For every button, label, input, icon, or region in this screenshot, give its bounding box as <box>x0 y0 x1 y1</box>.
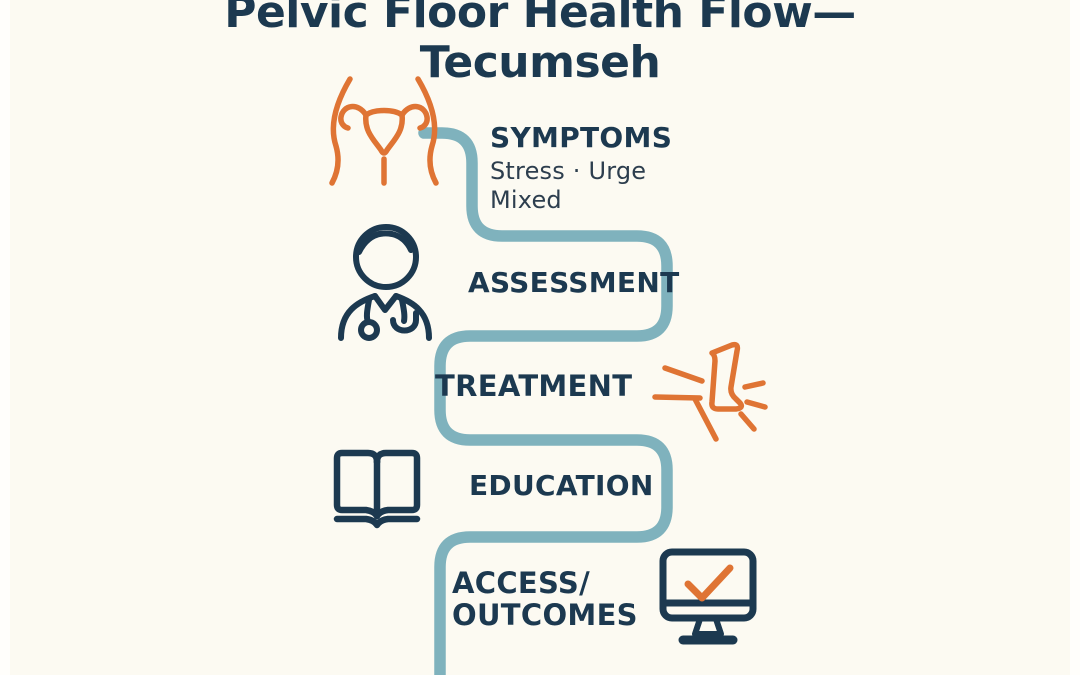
stage-label-education: EDUCATION <box>469 469 654 502</box>
title-line1: Pelvic Floor Health Flow— <box>0 0 1080 38</box>
foot-impact-icon <box>652 341 768 447</box>
monitor-check-icon <box>655 545 761 651</box>
access-label-line2: OUTCOMES <box>452 599 638 631</box>
stage-label-symptoms: SYMPTOMS <box>490 121 672 154</box>
uterus-icon <box>323 76 445 188</box>
page-title: Pelvic Floor Health Flow— Tecumseh <box>0 0 1080 88</box>
stage-label-access-outcomes: ACCESS/ OUTCOMES <box>452 567 638 631</box>
stage-label-assessment: ASSESSMENT <box>468 266 679 299</box>
symptoms-detail-1: Stress · Urge <box>490 157 646 186</box>
stage-sub-symptoms: Stress · Urge Mixed <box>490 157 646 215</box>
infographic-canvas: Pelvic Floor Health Flow— Tecumseh SYMPT… <box>0 0 1080 675</box>
symptoms-detail-2: Mixed <box>490 186 646 215</box>
access-label-line1: ACCESS/ <box>452 567 638 599</box>
stage-label-treatment: TREATMENT <box>435 369 632 403</box>
check-mark <box>688 568 730 598</box>
open-book-icon <box>329 446 425 536</box>
title-line2: Tecumseh <box>0 38 1080 88</box>
doctor-icon <box>332 215 438 341</box>
